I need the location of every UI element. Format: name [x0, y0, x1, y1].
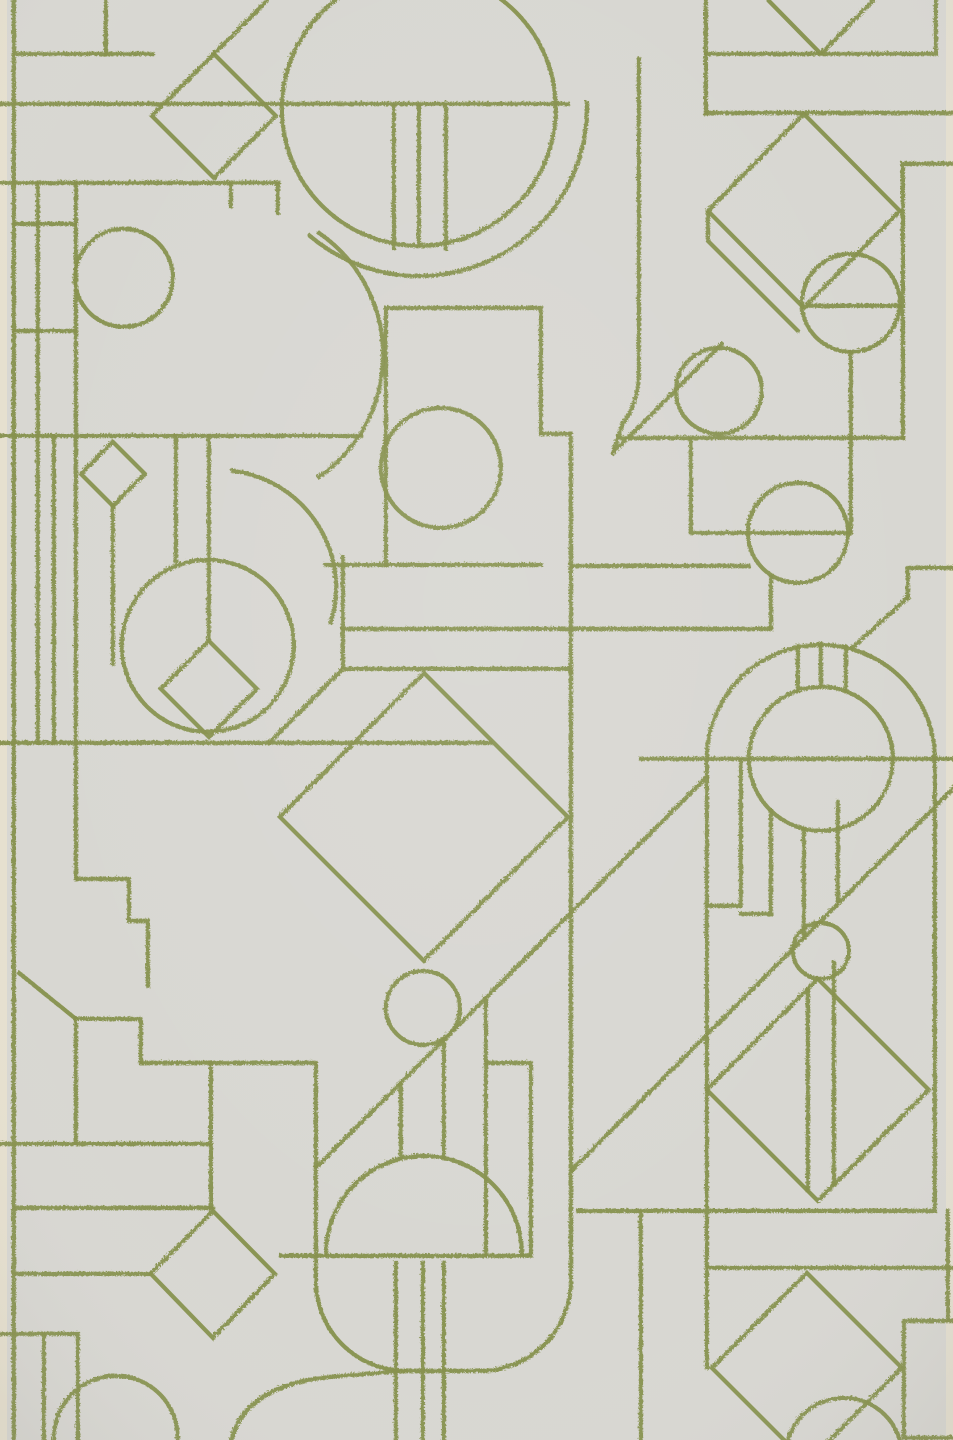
wallpaper-photo — [0, 0, 953, 1440]
vignette-overlay — [0, 0, 953, 1440]
wallpaper-pattern-svg — [0, 0, 953, 1440]
